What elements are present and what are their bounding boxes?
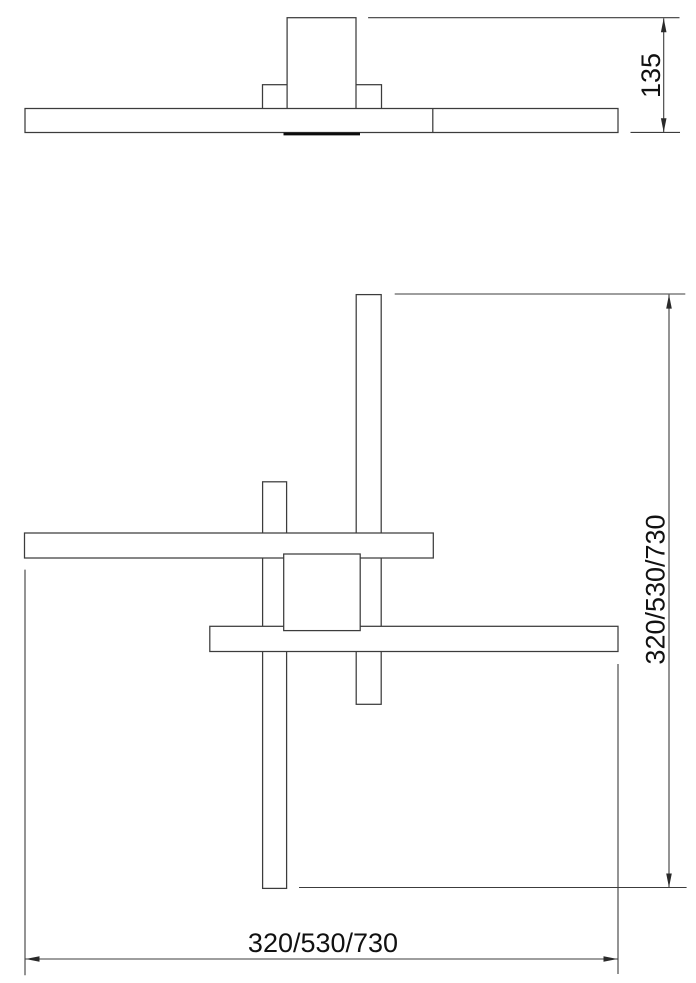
svg-text:135: 135 — [636, 53, 666, 98]
svg-text:320/530/730: 320/530/730 — [248, 928, 398, 958]
svg-text:320/530/730: 320/530/730 — [641, 514, 671, 664]
